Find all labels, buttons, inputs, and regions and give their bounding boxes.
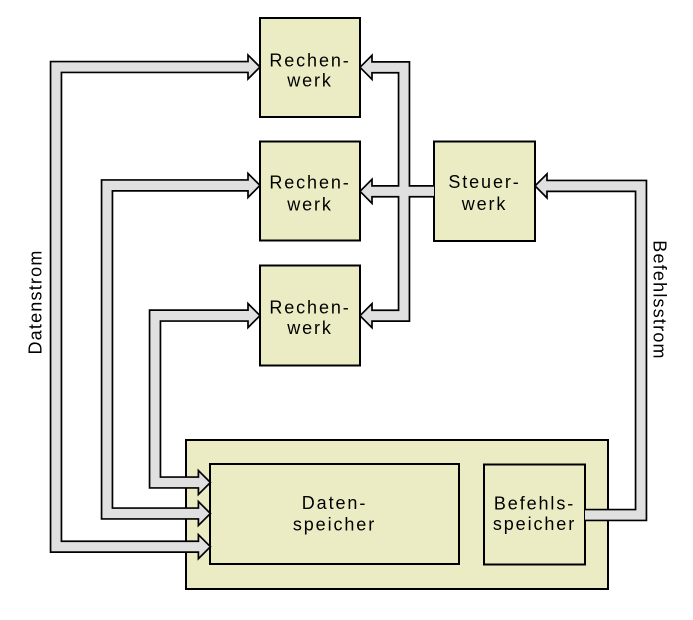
svg-text:Befehls-: Befehls- [494, 494, 575, 514]
svg-text:Datenstrom: Datenstrom [26, 249, 46, 354]
svg-text:speicher: speicher [493, 514, 576, 534]
svg-text:werk: werk [286, 195, 333, 215]
svg-text:Daten-: Daten- [302, 493, 367, 513]
svg-text:Steuer-: Steuer- [448, 172, 520, 192]
svg-text:speicher: speicher [293, 515, 376, 535]
svg-text:Rechen-: Rechen- [269, 298, 350, 318]
svg-text:werk: werk [461, 194, 508, 214]
svg-text:Befehlsstrom: Befehlsstrom [650, 240, 670, 359]
svg-text:Rechen-: Rechen- [269, 50, 350, 70]
svg-text:werk: werk [286, 318, 333, 338]
svg-text:werk: werk [286, 71, 333, 91]
svg-text:Rechen-: Rechen- [269, 173, 350, 193]
